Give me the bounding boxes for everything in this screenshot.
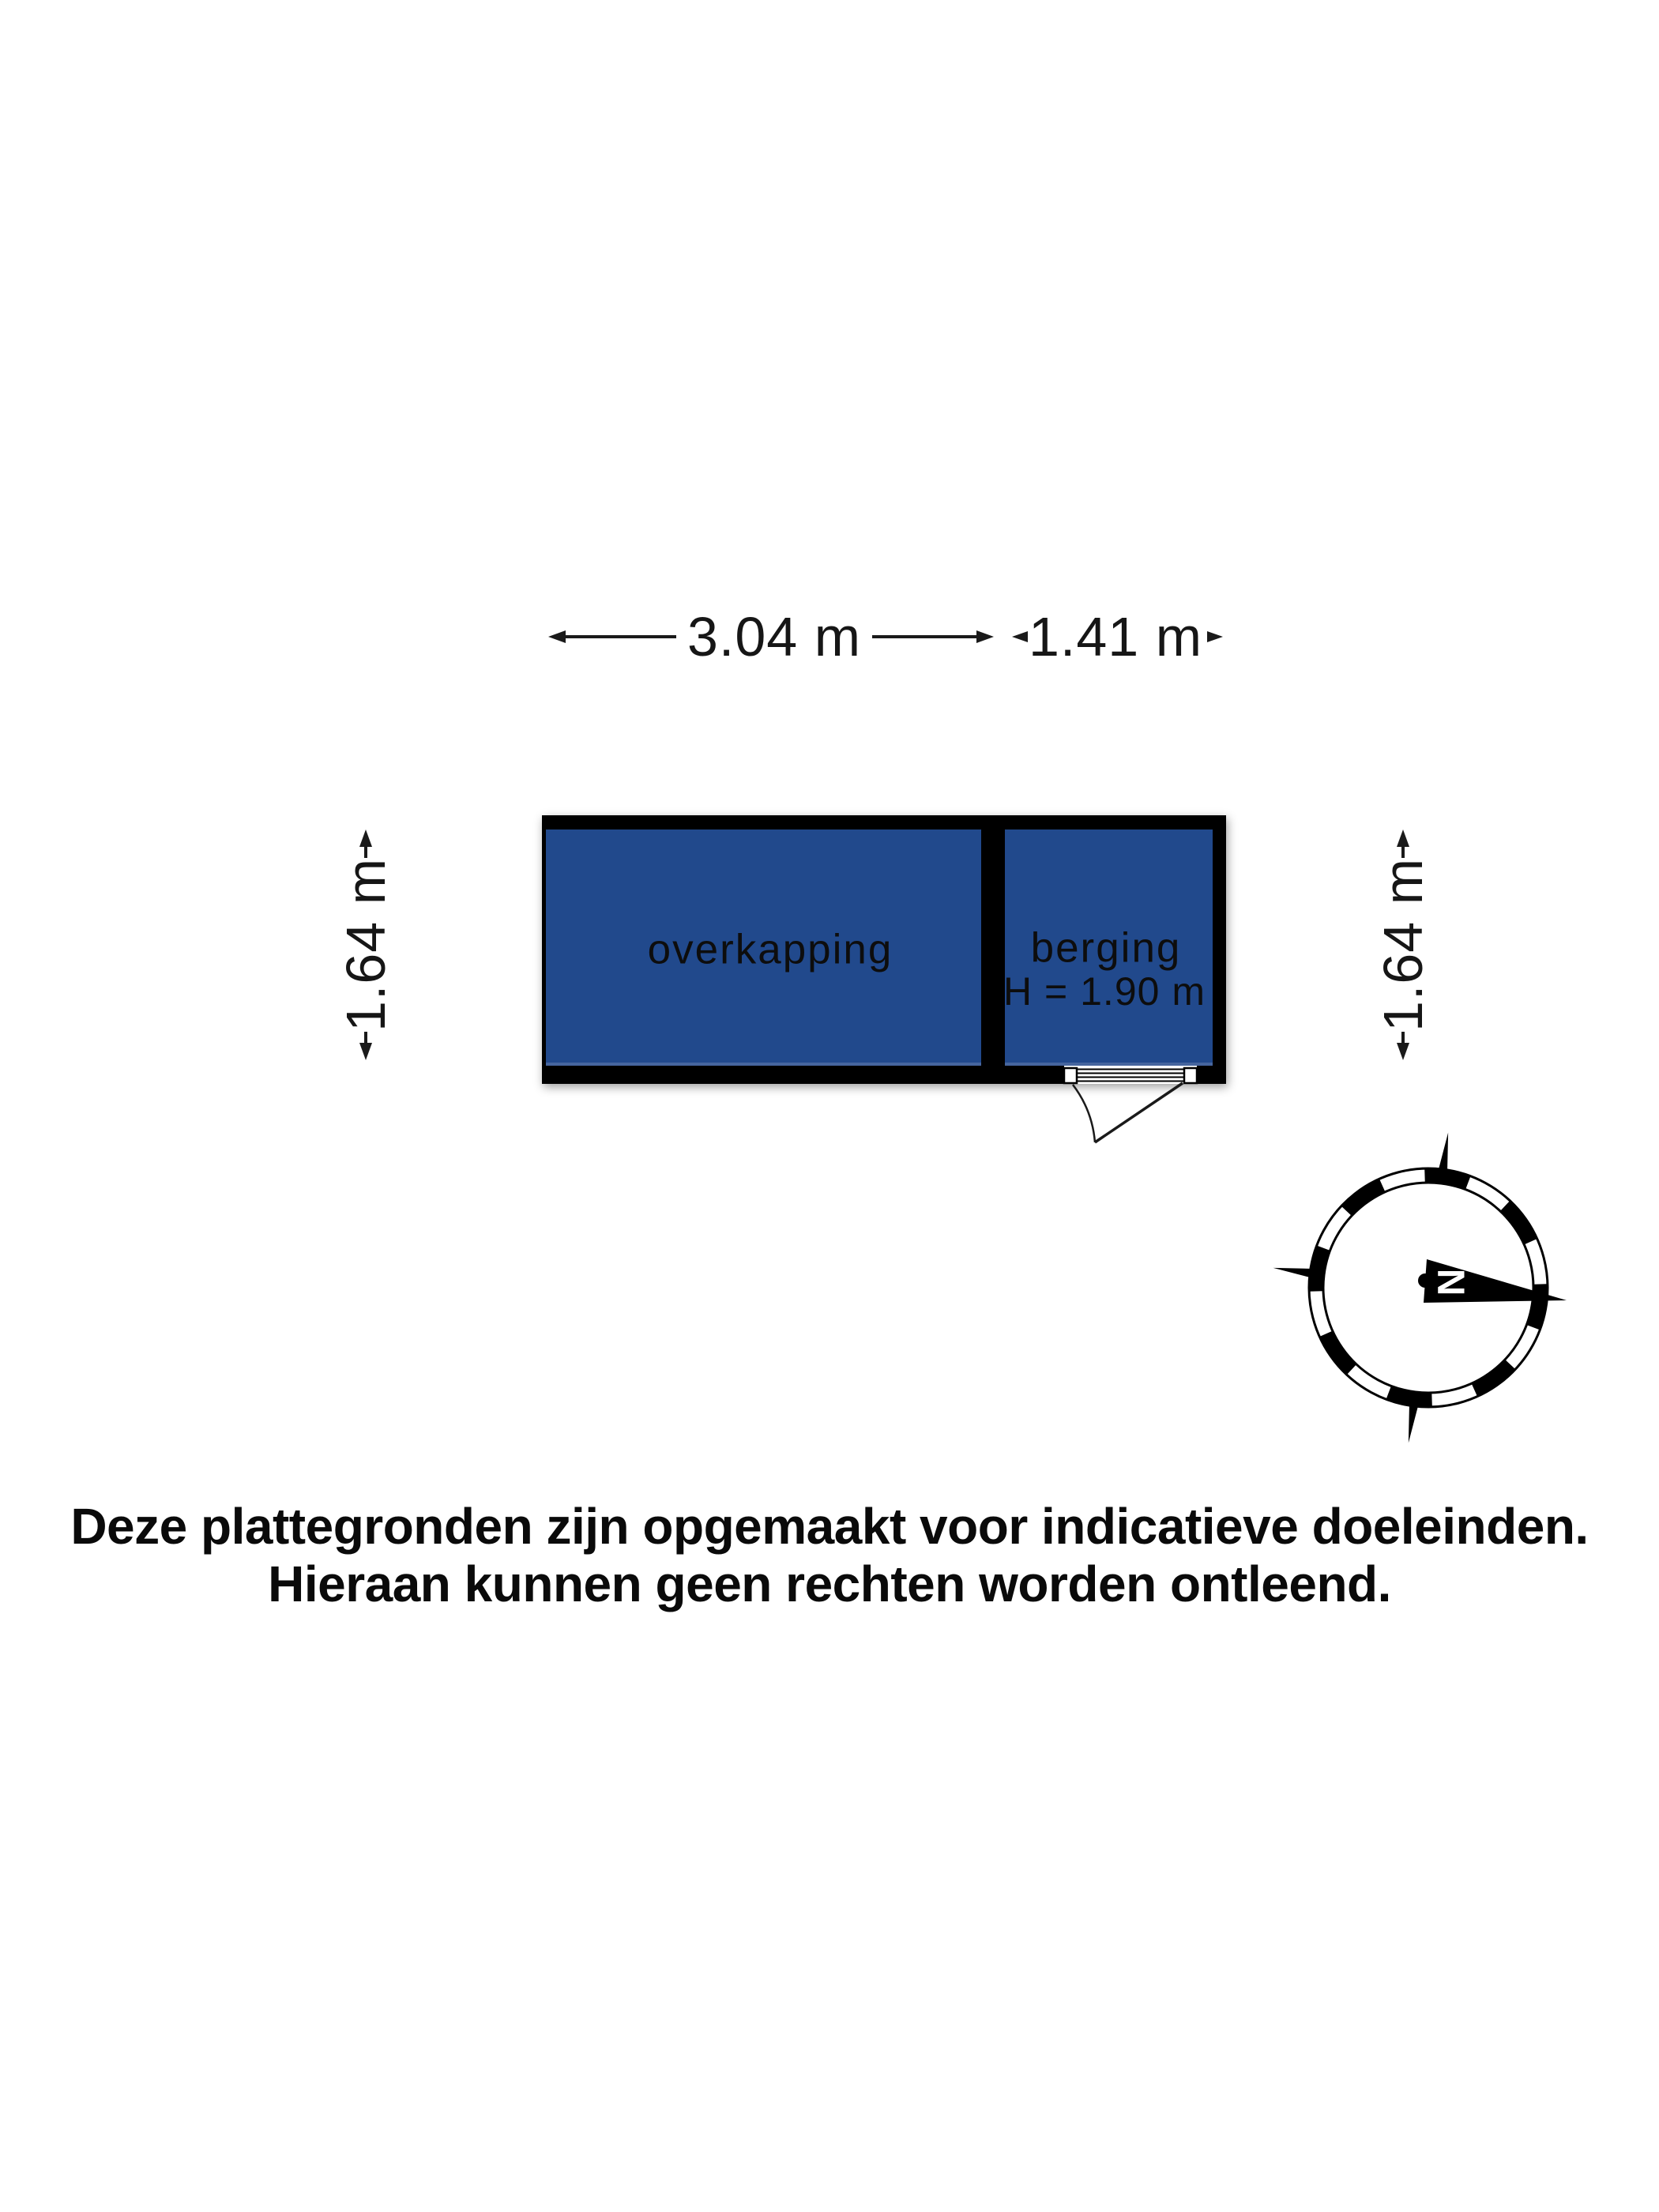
compass-ring xyxy=(1254,1113,1566,1458)
door-post-left xyxy=(1064,1068,1077,1083)
room-label-overkapping: overkapping xyxy=(648,926,893,974)
dimension-label-depth-right: 1.64 m xyxy=(1371,858,1435,1032)
door xyxy=(1064,1066,1197,1142)
compass-north-label: N xyxy=(1431,1269,1473,1296)
arrowhead-right-icon xyxy=(1207,631,1223,642)
dimension-label-depth-left: 1.64 m xyxy=(334,858,397,1032)
compass-pivot-dot xyxy=(1418,1273,1432,1288)
arrowhead-right-icon xyxy=(976,630,994,643)
plan-annotations: N xyxy=(0,0,1659,2212)
disclaimer-line-1: Deze plattegronden zijn opgemaakt voor i… xyxy=(0,1498,1659,1556)
disclaimer-line-2: Hieraan kunnen geen rechten worden ontle… xyxy=(0,1556,1659,1613)
disclaimer: Deze plattegronden zijn opgemaakt voor i… xyxy=(0,1498,1659,1613)
dimension-label-width-berging: 1.41 m xyxy=(1029,605,1202,668)
door-post-right xyxy=(1184,1068,1197,1083)
dimension-label-width-overkapping: 3.04 m xyxy=(687,605,861,668)
room-label-berging: berging xyxy=(1031,924,1182,972)
door-leaf xyxy=(1095,1083,1183,1142)
room-label-berging-height: H = 1.90 m xyxy=(1003,969,1206,1014)
arrowhead-down-icon xyxy=(1397,1043,1409,1060)
compass-rose: N xyxy=(1254,1113,1567,1458)
floorplan-page: N 3.04 m 1.41 m 1.64 m 1.64 m overkappin… xyxy=(0,0,1659,2212)
door-swing-arc xyxy=(1073,1085,1095,1142)
arrowhead-left-icon xyxy=(1012,631,1028,642)
arrowhead-down-icon xyxy=(359,1043,372,1060)
